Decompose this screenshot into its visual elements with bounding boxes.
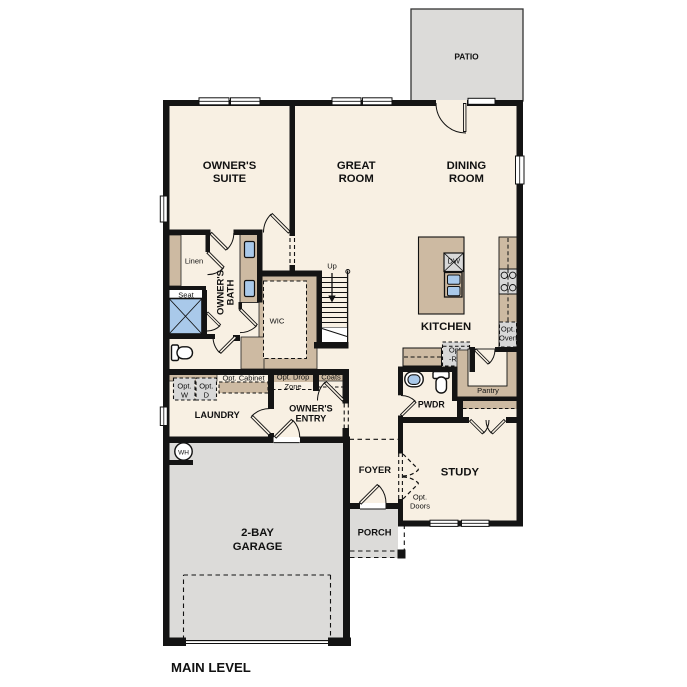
svg-text:GARAGE: GARAGE bbox=[233, 541, 283, 553]
svg-text:2-BAY: 2-BAY bbox=[241, 527, 274, 539]
svg-text:BATH: BATH bbox=[226, 280, 237, 306]
svg-text:FOYER: FOYER bbox=[359, 464, 392, 475]
svg-text:PATIO: PATIO bbox=[454, 51, 479, 61]
svg-text:D: D bbox=[204, 391, 210, 400]
svg-text:ROOM: ROOM bbox=[449, 173, 484, 185]
svg-text:PWDR: PWDR bbox=[418, 400, 446, 410]
svg-text:Doors: Doors bbox=[410, 502, 430, 511]
svg-text:DW: DW bbox=[448, 257, 461, 266]
svg-text:KITCHEN: KITCHEN bbox=[421, 321, 471, 333]
svg-text:DINING: DINING bbox=[447, 160, 487, 172]
svg-text:LAUNDRY: LAUNDRY bbox=[195, 410, 241, 420]
svg-text:ROOM: ROOM bbox=[339, 173, 374, 185]
svg-text:OWNER'S: OWNER'S bbox=[203, 160, 257, 172]
svg-text:Opt.: Opt. bbox=[199, 382, 213, 391]
svg-text:Zone: Zone bbox=[284, 382, 301, 391]
svg-text:OWNER'S: OWNER'S bbox=[289, 404, 333, 414]
svg-text:STUDY: STUDY bbox=[441, 467, 480, 479]
svg-text:Pantry: Pantry bbox=[477, 386, 499, 395]
svg-text:ENTRY: ENTRY bbox=[296, 414, 327, 424]
svg-text:Linen: Linen bbox=[185, 257, 203, 266]
svg-text:SUITE: SUITE bbox=[213, 173, 247, 185]
svg-text:WH: WH bbox=[178, 450, 189, 457]
svg-text:GREAT: GREAT bbox=[337, 160, 376, 172]
svg-text:PORCH: PORCH bbox=[358, 526, 392, 537]
svg-text:Opt.: Opt. bbox=[501, 325, 515, 334]
svg-text:W: W bbox=[181, 391, 189, 400]
svg-text:Opt.: Opt. bbox=[413, 493, 427, 502]
svg-text:Up: Up bbox=[327, 262, 337, 271]
svg-text:Oven: Oven bbox=[499, 334, 517, 343]
svg-text:Opt.: Opt. bbox=[177, 382, 191, 391]
svg-text:MAIN LEVEL: MAIN LEVEL bbox=[171, 660, 251, 675]
svg-text:WIC: WIC bbox=[270, 317, 285, 326]
